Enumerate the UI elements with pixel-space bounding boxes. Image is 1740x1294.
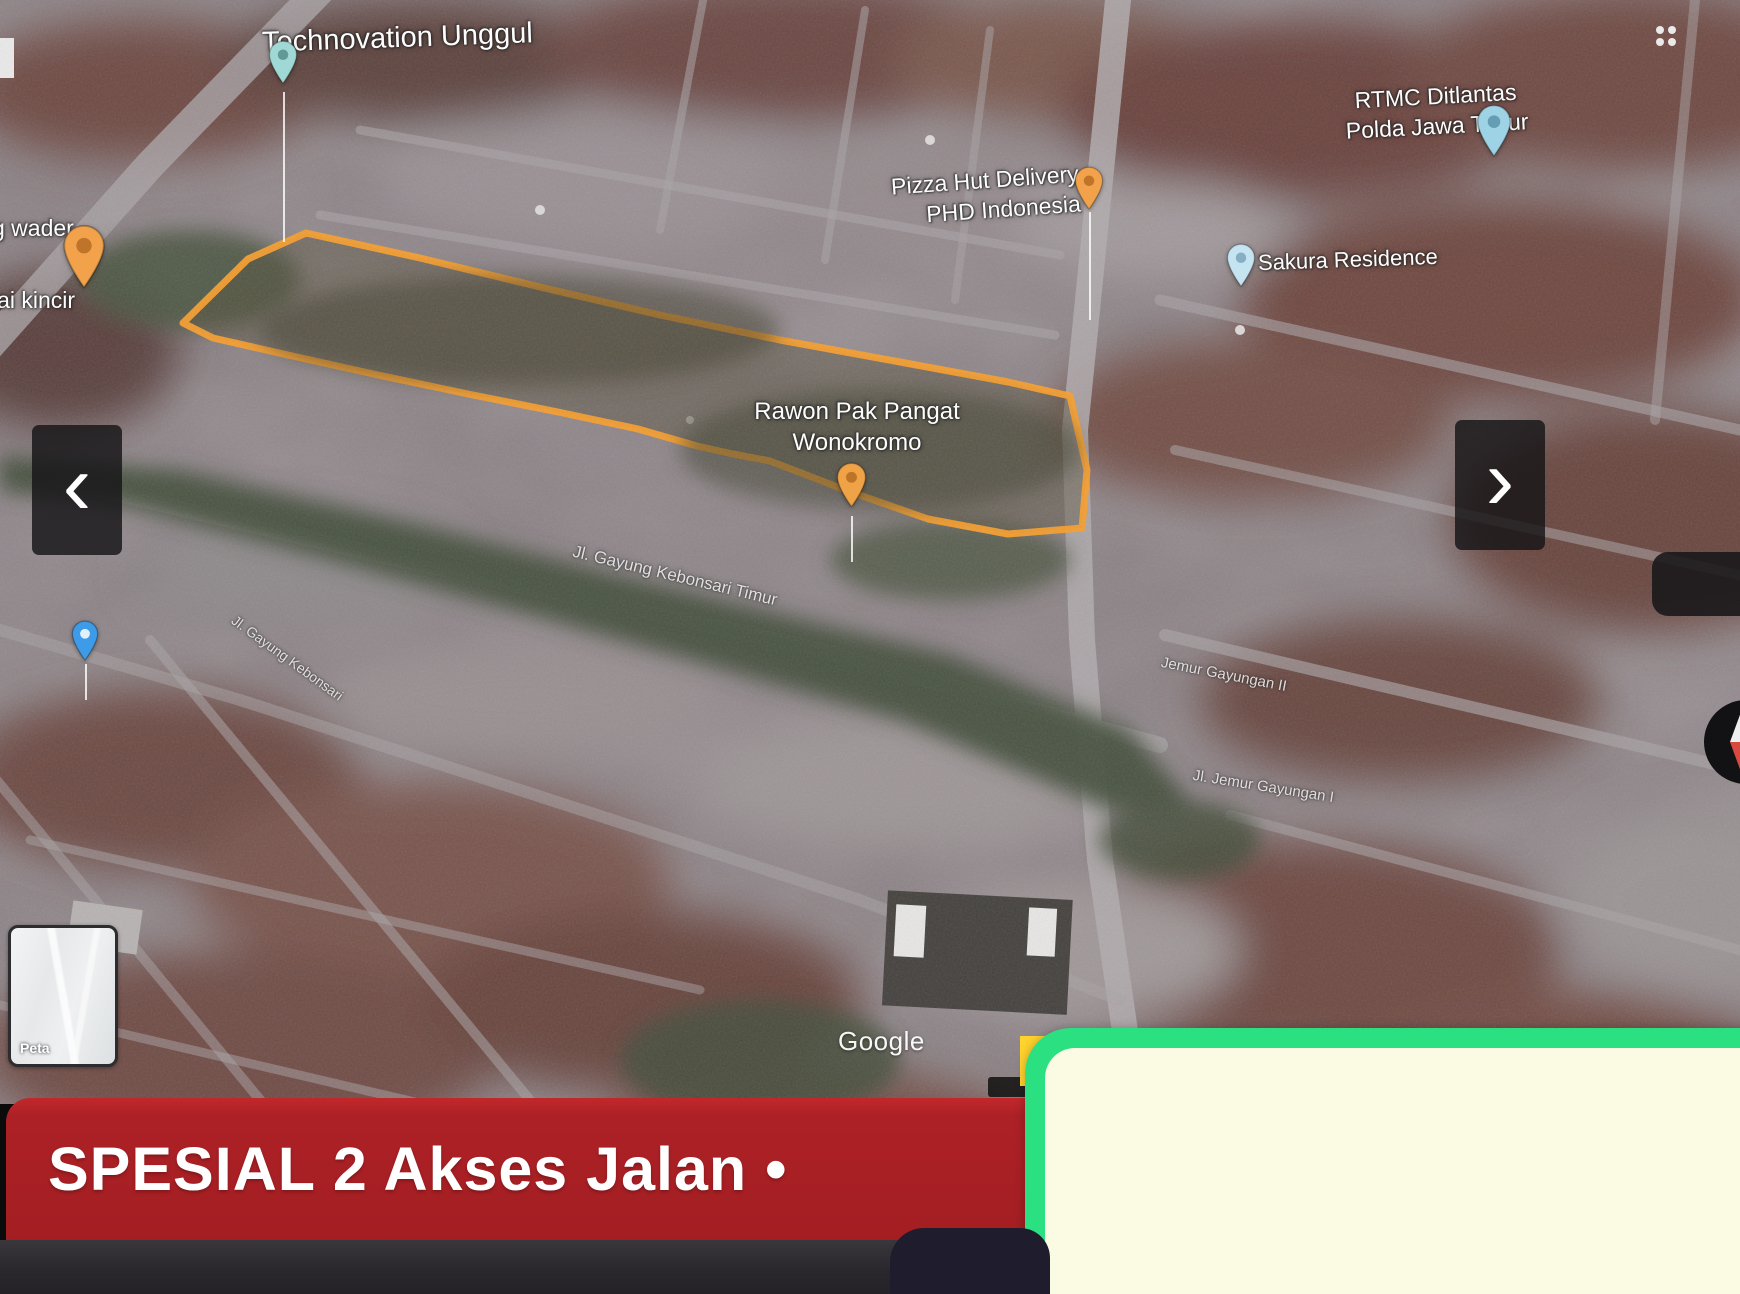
map-type-label: Peta [20,1040,50,1056]
promo-banner: SPESIAL 2 Akses Jalan • [6,1098,1062,1240]
poi-label-warung-wader-line2: lai kincir [0,286,75,316]
map-type-thumbnail[interactable]: Peta [8,925,118,1067]
compass-north-needle [1730,712,1740,742]
info-card [1025,1028,1740,1294]
chevron-left-icon: ‹ [63,442,92,528]
edge-control-pill[interactable] [1652,552,1740,616]
next-slide-button[interactable]: › [1455,420,1545,550]
map-pin-sakura[interactable] [1226,243,1256,288]
pin-stem [1089,212,1091,320]
map-pin-unlabeled[interactable] [71,620,99,662]
prev-slide-button[interactable]: ‹ [32,425,122,555]
google-watermark: Google [838,1026,925,1057]
poi-label-rawon: Rawon Pak Pangat Wonokromo [752,396,962,458]
promo-banner-text: SPESIAL 2 Akses Jalan • [6,1134,787,1204]
map-pin-icon [1226,243,1256,288]
map-pin-pizza-hut[interactable] [1074,166,1104,211]
map-pin-icon [1476,104,1512,158]
map-pin-icon [62,224,106,290]
pin-stem [85,664,87,700]
map-pin-icon [268,40,298,85]
info-card-body [1045,1048,1740,1294]
map-pin-icon [71,620,99,662]
map-pin-rtmc[interactable] [1476,104,1512,158]
dark-corner-shape [890,1228,1050,1294]
map-pin-warung-wader[interactable] [62,224,106,290]
map-pin-rawon[interactable] [836,462,867,509]
compass-south-needle [1730,742,1740,772]
pin-stem [851,516,853,562]
listing-map-slide: Technovation Unggul Pizza Hut Delivery P… [0,0,1740,1294]
map-pin-icon [1074,166,1104,211]
map-pin-technovation[interactable] [268,40,298,85]
map-pin-icon [836,462,867,509]
pin-stem [283,92,285,242]
chevron-right-icon: › [1486,437,1515,523]
